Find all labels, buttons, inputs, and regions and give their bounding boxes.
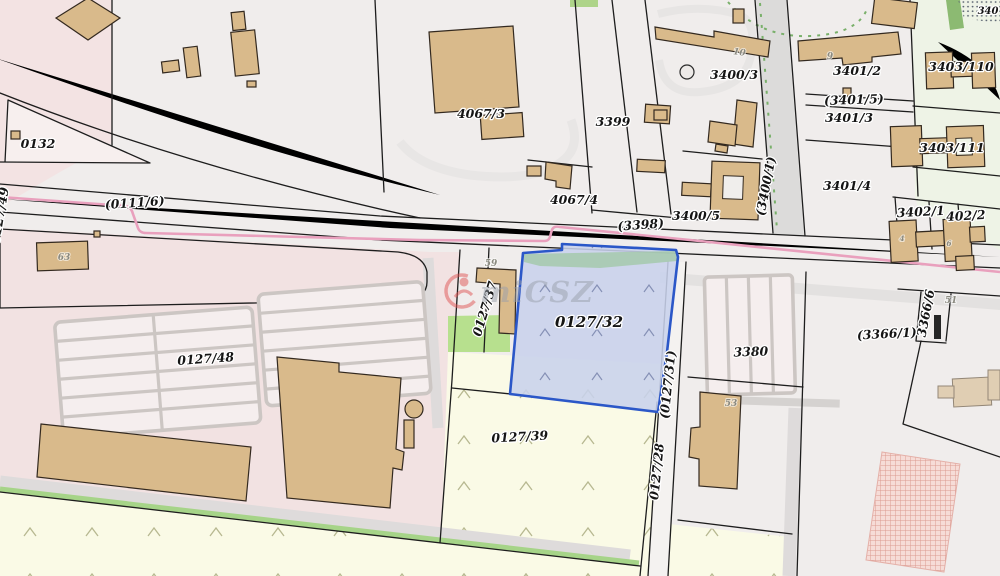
parcel-label-3399: 3399 [596,114,631,129]
parcel-label-4067-3: 4067/3 [457,106,505,121]
tree-circle [680,65,694,79]
parcel-label-corner-partial: 340 [978,6,999,17]
parcel-label-0127-32: 0127/32 [555,313,623,331]
parcel-label-0132: 0132 [21,136,56,151]
parcel-label-3402-2: 402/2 [946,207,986,224]
building-number-6: 6 [946,239,952,248]
building-4067-3 [429,26,519,113]
watermark-text: miCSZ [480,275,595,309]
parcel-label-3401-2: 3401/2 [833,63,881,78]
parcel-label-3400-5: 3400/5 [672,208,720,223]
watermark: miCSZ [439,268,594,313]
building-number-4: 4 [899,234,904,243]
building-number-10: 10 [732,47,747,59]
building-number-9: 9 [827,52,834,62]
parcel-label-4067-4: 4067/4 [550,192,598,207]
warehouse-2 [277,357,404,508]
parcel-label-3400-3: 3400/3 [710,67,758,82]
parcel-label-3403-110: 3403/110 [928,59,994,74]
building-number-51: 51 [945,296,958,306]
road-label-3401-5: (3401/5) [824,91,884,108]
map-viewport[interactable]: 0132 (0111/6) 0127/49 0127/48 4067/3 406… [0,0,1000,576]
building-number-63: 63 [58,253,71,263]
building-number-59: 59 [485,259,498,269]
parcel-label-3380: 3380 [733,343,769,359]
parcel-label-3401-3: 3401/3 [825,110,873,125]
silo-circle [405,400,423,418]
road-label-3366-1: (3366/1) [856,324,917,342]
watermark-logo-head-icon [460,278,469,287]
hatched-area [866,452,960,572]
parcel-label-3401-4: 3401/4 [823,178,871,193]
parcel-label-3403-111: 3403/111 [919,140,984,155]
building-number-53: 53 [725,399,738,409]
building-3366-6-bar [934,315,941,339]
cadastral-map[interactable]: 0132 (0111/6) 0127/49 0127/48 4067/3 406… [0,0,1000,576]
parcel-label-3402-1: 3402/1 [896,203,945,220]
parcel-label-0127-39: 0127/39 [491,428,549,446]
